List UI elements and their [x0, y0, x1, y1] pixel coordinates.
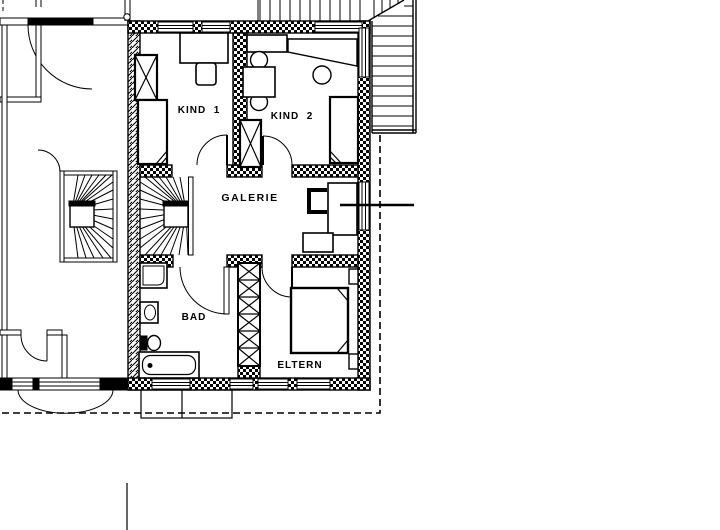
- chair: [196, 63, 216, 85]
- left-stair-landing-edge: [69, 201, 95, 206]
- desk: [243, 67, 275, 97]
- floor-plan-drawing: KIND 1 KIND 2 GALERIE BAD ELTERN: [0, 0, 720, 530]
- eltern-door: [262, 267, 292, 297]
- wardrobe: [135, 55, 157, 100]
- sink: [140, 302, 158, 323]
- nightstand: [349, 269, 358, 284]
- kind1-furniture: [135, 33, 228, 164]
- window: [359, 28, 369, 77]
- window: [202, 22, 230, 32]
- main-stair: [140, 177, 193, 255]
- label-eltern: ELTERN: [277, 360, 322, 371]
- chair: [251, 52, 268, 69]
- side-table: [303, 233, 333, 252]
- left-unit-door-swing: [21, 335, 47, 361]
- kind2-door: [263, 136, 292, 165]
- chair: [309, 190, 327, 212]
- wall-continuation-ticks: [3, 0, 41, 11]
- wardrobe: [240, 120, 261, 167]
- window: [230, 379, 253, 389]
- bed: [138, 100, 167, 164]
- deck-valley-line: [368, 0, 404, 21]
- desk: [180, 33, 228, 63]
- stool: [313, 66, 331, 84]
- double-bed: [291, 288, 348, 353]
- left-unit-wall: [0, 330, 21, 335]
- window: [315, 22, 362, 32]
- kind1-door: [197, 135, 227, 165]
- interior-wall: [140, 165, 172, 177]
- interior-wall: [292, 255, 358, 267]
- left-unit-wall: [62, 335, 67, 378]
- left-unit-windows: [12, 382, 100, 386]
- deck-planks-vertical: [260, 0, 398, 21]
- stair-railing: [189, 177, 194, 255]
- shower: [140, 263, 167, 288]
- left-unit-door-swing: [38, 150, 60, 172]
- toilet: [140, 336, 161, 351]
- bad-door: [180, 267, 229, 314]
- nightstand: [349, 354, 358, 369]
- left-unit-door-leaf: [28, 19, 93, 25]
- lower-annex: [141, 390, 232, 418]
- left-unit: [0, 0, 128, 413]
- left-unit-outer-wall: [2, 25, 7, 378]
- deck-planks-horizontal: [372, 6, 413, 126]
- roof-slope-line: [288, 39, 357, 66]
- label-kind2: KIND 2: [271, 111, 314, 122]
- eltern-furniture: [291, 269, 358, 369]
- main-stair-landing-edge: [163, 201, 189, 206]
- left-unit-wall: [47, 330, 62, 335]
- window: [297, 379, 330, 389]
- window: [258, 379, 288, 389]
- label-kind1: KIND 1: [178, 105, 221, 116]
- label-galerie: GALERIE: [221, 192, 278, 204]
- desk: [328, 183, 357, 235]
- window: [158, 22, 193, 32]
- bathtub: [139, 352, 199, 378]
- shaft-column: [238, 263, 260, 366]
- left-unit-wall: [36, 25, 41, 97]
- left-unit-stair: [60, 171, 117, 262]
- terrace-curve: [18, 390, 113, 413]
- gutter-mark: [124, 14, 130, 20]
- bed: [330, 97, 358, 163]
- floor-plan-page: KIND 1 KIND 2 GALERIE BAD ELTERN: [0, 0, 720, 530]
- interior-wall: [292, 165, 358, 177]
- shelf: [247, 35, 287, 52]
- kind2-furniture: [240, 35, 358, 167]
- label-bad: BAD: [182, 312, 207, 323]
- interior-wall: [238, 366, 260, 378]
- window: [152, 379, 190, 389]
